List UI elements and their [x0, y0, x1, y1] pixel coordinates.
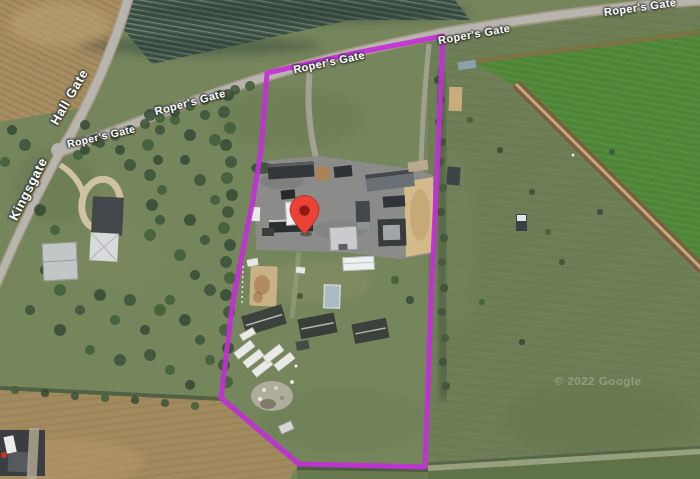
tree-canopy [179, 314, 191, 326]
tree-canopy [391, 276, 399, 284]
tree-canopy [406, 296, 414, 304]
tree-canopy [75, 305, 85, 315]
tree-canopy [155, 215, 165, 225]
tree-canopy [497, 147, 503, 153]
sand-arena [242, 266, 278, 307]
tree-canopy [185, 101, 195, 111]
tree-canopy [80, 120, 90, 130]
tree-canopy [597, 209, 603, 215]
tree-canopy [200, 110, 210, 120]
tree-canopy [50, 225, 60, 235]
tree-canopy [146, 199, 158, 211]
tree-canopy [204, 284, 216, 296]
satellite-map-canvas[interactable]: Hall Gate Kingsgate Roper's Gate Roper's… [0, 0, 700, 479]
field-plowed-top-left [0, 0, 133, 122]
tree-canopy [609, 149, 615, 155]
tree-canopy [479, 299, 485, 305]
tree-canopy [218, 106, 230, 118]
tree-canopy [174, 249, 186, 261]
field-crop-rows-top [80, 0, 470, 64]
tree-canopy [209, 134, 221, 146]
tree-canopy [114, 354, 126, 366]
tree-canopy [165, 295, 175, 305]
tree-canopy [200, 95, 210, 105]
tree-canopy [85, 345, 95, 355]
tree-canopy [245, 81, 255, 91]
tree-canopy [220, 256, 232, 268]
tree-canopy [110, 315, 120, 325]
tree-canopy [220, 139, 232, 151]
tree-canopy [230, 85, 240, 95]
tree-canopy [155, 125, 165, 135]
tree-canopy [25, 305, 35, 315]
tree-canopy [545, 229, 551, 235]
tree-canopy [529, 189, 535, 195]
tree-canopy [224, 239, 236, 251]
tree-canopy [34, 204, 46, 216]
tree-canopy [215, 90, 225, 100]
tree-canopy [7, 125, 17, 135]
tree-canopy [71, 392, 79, 400]
tree-canopy [54, 284, 66, 296]
tree-canopy [155, 113, 165, 123]
tree-canopy [144, 349, 156, 361]
satellite-imagery-layer [0, 0, 700, 479]
tree-canopy [80, 145, 90, 155]
tree-canopy [218, 222, 230, 234]
tree-canopy [115, 145, 125, 155]
tree-canopy [170, 107, 180, 117]
tree-canopy [467, 117, 473, 123]
bottom-left-farm-buildings [0, 428, 45, 479]
tree-canopy [140, 119, 150, 129]
tree-canopy [221, 172, 233, 184]
tree-canopy [185, 380, 195, 390]
tree-canopy [205, 355, 215, 365]
tree-canopy [184, 214, 196, 226]
tree-canopy [153, 155, 163, 165]
tree-canopy [124, 159, 136, 171]
tree-canopy [200, 235, 210, 245]
tree-canopy [519, 339, 525, 345]
tree-canopy [144, 229, 156, 241]
tree-canopy [224, 122, 236, 134]
tree-canopy [225, 156, 237, 168]
tree-canopy [11, 386, 19, 394]
tree-canopy [94, 289, 106, 301]
tree-canopy [95, 138, 105, 148]
tree-canopy [222, 206, 234, 218]
tree-canopy [131, 396, 139, 404]
tree-canopy [190, 270, 200, 280]
tree-canopy [0, 157, 10, 167]
tree-canopy [165, 365, 175, 375]
tree-canopy [19, 139, 31, 151]
tree-canopy [210, 195, 220, 205]
tree-canopy [194, 174, 206, 186]
tree-canopy [110, 131, 120, 141]
tree-canopy [124, 294, 136, 306]
tree-canopy [41, 389, 49, 397]
tree-canopy [195, 335, 205, 345]
tree-canopy [226, 189, 238, 201]
tree-canopy [191, 402, 199, 410]
tree-canopy [142, 139, 154, 151]
tree-canopy [54, 324, 66, 336]
tree-canopy [559, 259, 565, 265]
tree-canopy [220, 289, 232, 301]
tree-canopy [157, 185, 167, 195]
tree-canopy [101, 394, 109, 402]
tree-canopy [140, 325, 150, 335]
tree-canopy [144, 169, 156, 181]
tree-canopy [161, 399, 169, 407]
tree-canopy [180, 155, 190, 165]
tree-canopy [125, 125, 135, 135]
tree-canopy [297, 293, 303, 299]
tree-canopy [154, 304, 166, 316]
tree-canopy [184, 129, 196, 141]
